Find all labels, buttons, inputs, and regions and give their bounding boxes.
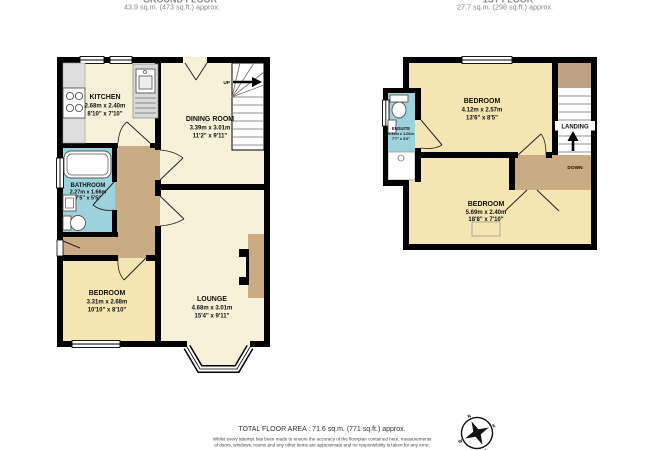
ensuite-toilet-icon: [392, 102, 406, 118]
disclaimer-line1: Whilst every attempt has been made to en…: [213, 437, 432, 442]
compass-rose-icon: N E S W: [449, 406, 504, 450]
kitchen-name: KITCHEN: [89, 94, 120, 101]
first-floor-area: 27.7 sq.m. (298 sq.ft.) approx.: [457, 3, 553, 12]
bedroom1-imperial: 13'6" x 8'5": [466, 116, 498, 122]
bathroom-name: BATHROOM: [71, 183, 106, 189]
chimney-breast: [248, 234, 266, 298]
bedroom1-metric: 4.12m x 2.57m: [462, 108, 503, 114]
kitchen-imperial: 8'10" x 7'10": [87, 112, 122, 118]
ensuite-cistern-icon: [390, 95, 408, 102]
ground-floor-area: 43.9 sq.m. (473 sq.ft.) approx.: [124, 3, 220, 12]
ground-bedroom-name: BEDROOM: [89, 290, 126, 297]
ground-bedroom-imperial: 10'10" x 8'10": [88, 308, 127, 314]
disclaimer-line2: of doors, windows, rooms and any other i…: [214, 443, 430, 448]
lounge-metric: 4.68m x 3.01m: [192, 306, 233, 312]
first-floor-plan: LANDING DOWN BEDROOM 4.12m x 2.57m 13'6"…: [383, 57, 598, 251]
landing-floor: [515, 155, 591, 190]
bedroom2-imperial: 18'8" x 7'10": [468, 217, 503, 223]
entrance-lobby-floor: [60, 236, 118, 258]
bathroom-imperial: 7'5" x 5'5": [75, 196, 101, 202]
bathtub-icon: [64, 151, 111, 178]
ground-bedroom-metric: 3.31m x 2.68m: [87, 300, 128, 306]
bedroom2-metric: 5.69m x 2.40m: [466, 210, 507, 216]
side-door-opening: [57, 240, 63, 256]
up-label: UP: [223, 80, 230, 86]
ensuite-metric: 2.31m x 1.06m: [388, 132, 414, 136]
lounge-imperial: 15'4" x 9'11": [195, 314, 230, 320]
down-label: DOWN: [567, 165, 583, 171]
kitchen-sink-icon: [133, 64, 158, 118]
stairs-top-landing: [558, 63, 591, 88]
basin-icon: [63, 195, 76, 211]
fireplace-icon: [239, 249, 249, 285]
front-door-opening: [183, 57, 207, 63]
lounge-name: LOUNGE: [197, 296, 227, 303]
hall-floor: [115, 146, 160, 258]
bedroom1-name: BEDROOM: [464, 98, 501, 105]
ground-floor-plan: UP: [57, 57, 271, 370]
footer: TOTAL FLOOR AREA : 71.6 sq.m. (771 sq.ft…: [213, 426, 432, 448]
stove-icon: [63, 88, 85, 118]
toilet-icon: [63, 216, 71, 230]
floorplan-page: UP: [0, 0, 650, 450]
ensuite-imperial: 7'7" x 3'6": [392, 137, 410, 141]
bedroom2-name: BEDROOM: [468, 201, 505, 208]
dining-metric: 3.39m x 3.01m: [190, 126, 231, 132]
dining-name: DINING ROOM: [186, 116, 234, 123]
total-floor-area: TOTAL FLOOR AREA : 71.6 sq.m. (771 sq.ft…: [238, 426, 405, 433]
dining-imperial: 11'2" x 9'11": [193, 134, 228, 140]
compass-east: E: [492, 423, 497, 429]
kitchen-metric: 2.68m x 2.40m: [85, 104, 126, 110]
floorplan-drawing: UP: [0, 0, 650, 450]
compass-star-icon: [460, 416, 495, 450]
shower-tray-icon: [388, 152, 415, 180]
ensuite-name: ENSUITE: [392, 126, 410, 131]
landing-label: LANDING: [561, 125, 589, 131]
